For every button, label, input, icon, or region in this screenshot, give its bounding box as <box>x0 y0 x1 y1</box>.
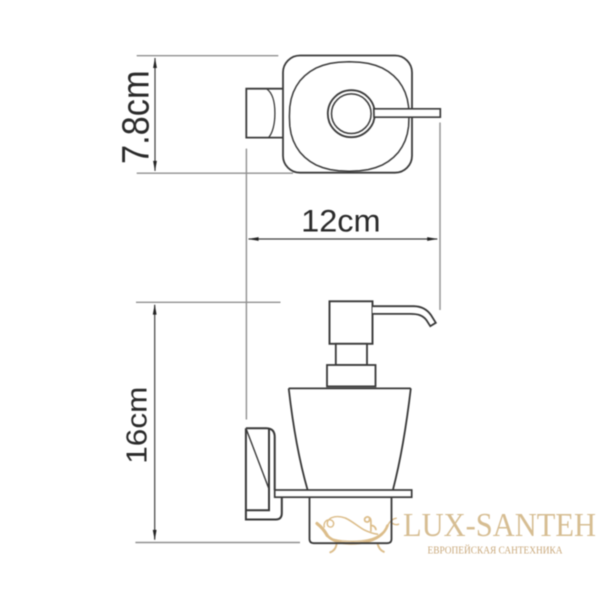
svg-text:16cm: 16cm <box>120 387 152 464</box>
svg-text:ЕВРОПЕЙСКАЯ САНТЕХНИКА: ЕВРОПЕЙСКАЯ САНТЕХНИКА <box>428 545 564 557</box>
svg-text:7.8cm: 7.8cm <box>115 70 157 164</box>
svg-text:12cm: 12cm <box>301 204 381 239</box>
svg-text:LUX-SANTEH: LUX-SANTEH <box>403 507 596 544</box>
